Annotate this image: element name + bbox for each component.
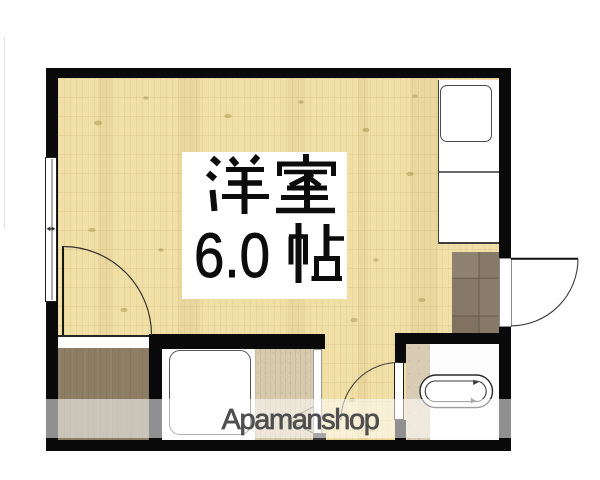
svg-text:6.0: 6.0	[194, 221, 270, 291]
